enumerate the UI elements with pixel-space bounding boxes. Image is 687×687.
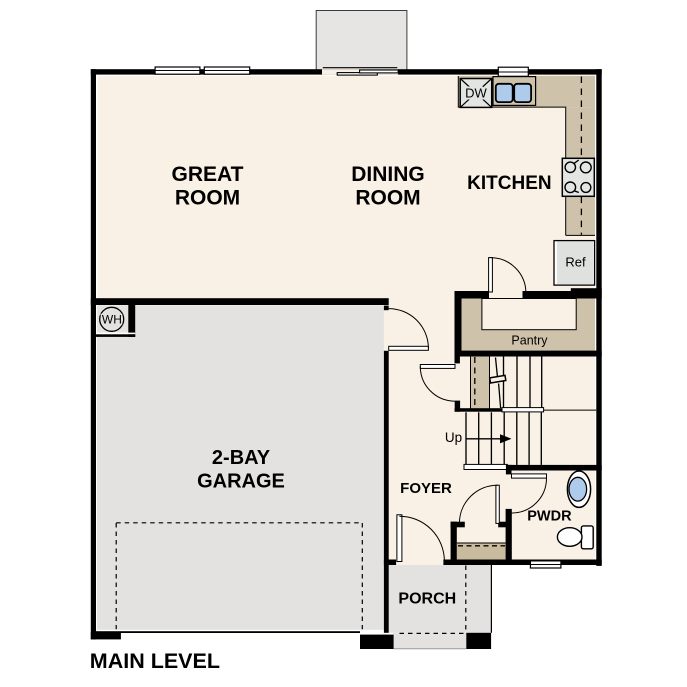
svg-text:DW: DW: [465, 85, 487, 100]
svg-text:Pantry: Pantry: [511, 333, 548, 347]
svg-text:ROOM: ROOM: [355, 186, 420, 209]
svg-text:Ref: Ref: [565, 255, 586, 270]
svg-text:PWDR: PWDR: [527, 509, 572, 525]
svg-text:KITCHEN: KITCHEN: [467, 173, 551, 194]
svg-text:WH: WH: [102, 312, 122, 326]
svg-text:GARAGE: GARAGE: [197, 471, 285, 493]
svg-text:DINING: DINING: [351, 163, 425, 186]
svg-text:Up: Up: [445, 430, 462, 445]
svg-text:PORCH: PORCH: [398, 591, 456, 608]
svg-text:ROOM: ROOM: [175, 186, 240, 209]
svg-text:MAIN LEVEL: MAIN LEVEL: [90, 649, 220, 673]
svg-text:FOYER: FOYER: [400, 480, 452, 497]
svg-text:GREAT: GREAT: [172, 163, 244, 186]
svg-text:2-BAY: 2-BAY: [212, 447, 271, 469]
